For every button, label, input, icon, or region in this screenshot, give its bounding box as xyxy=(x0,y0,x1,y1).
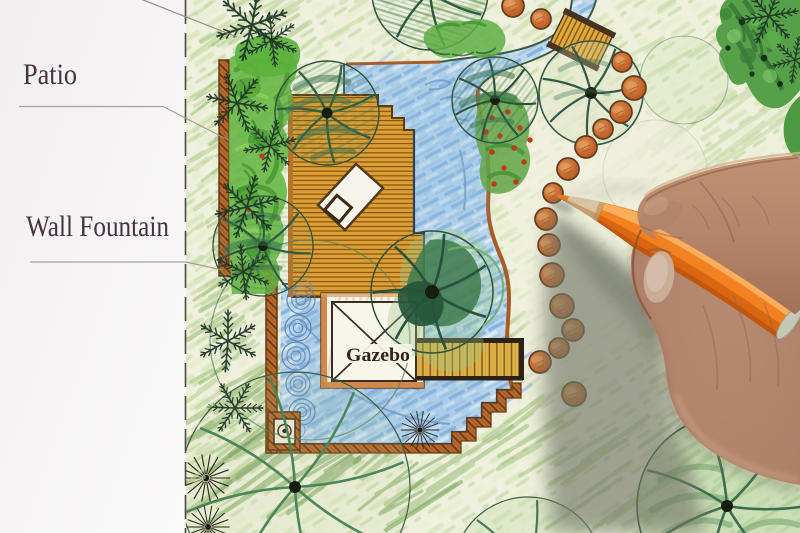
svg-text:Wall Fountain: Wall Fountain xyxy=(26,210,169,243)
svg-text:Patio: Patio xyxy=(23,58,77,91)
svg-text:Gazebo: Gazebo xyxy=(346,345,410,366)
